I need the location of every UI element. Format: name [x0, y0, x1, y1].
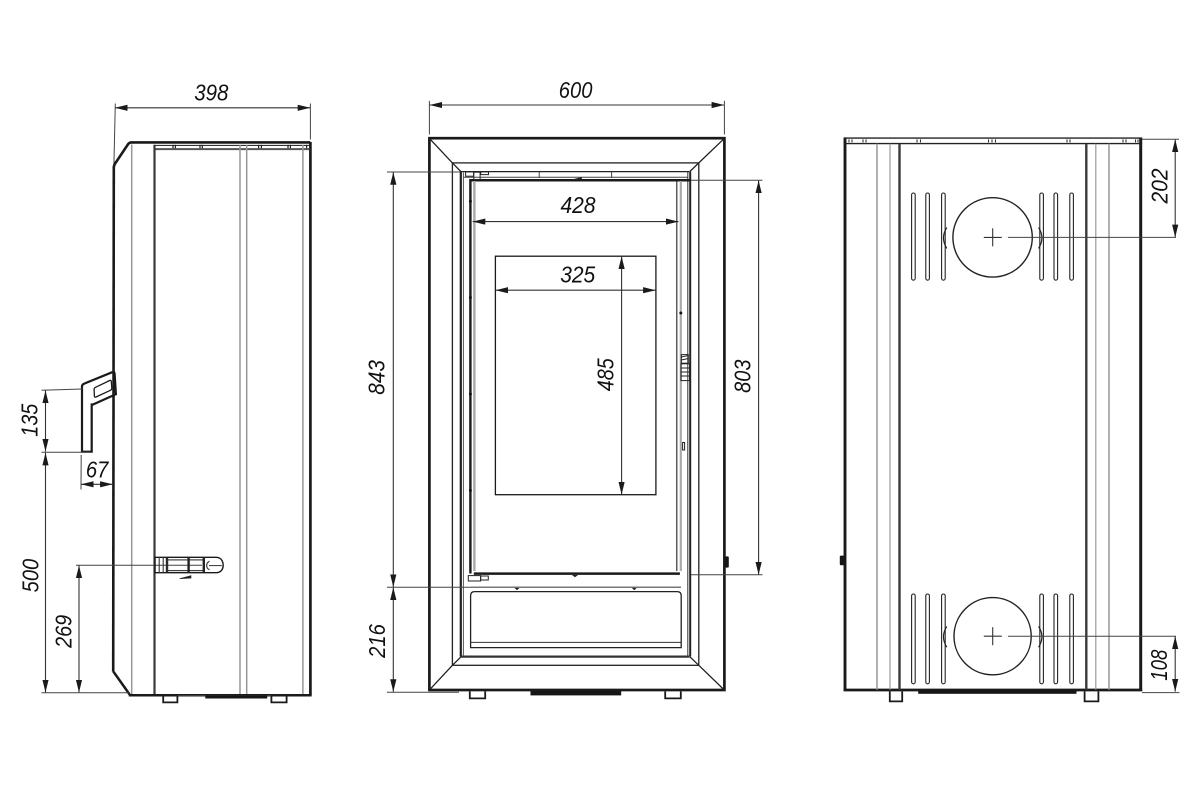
svg-text:67: 67	[86, 457, 109, 483]
svg-text:398: 398	[194, 79, 228, 105]
svg-text:325: 325	[560, 261, 596, 287]
svg-text:600: 600	[559, 77, 593, 103]
svg-text:135: 135	[16, 403, 42, 437]
svg-text:500: 500	[17, 559, 43, 593]
svg-text:485: 485	[593, 358, 619, 392]
svg-text:216: 216	[364, 623, 390, 658]
svg-text:428: 428	[561, 192, 596, 218]
svg-text:803: 803	[729, 360, 755, 393]
svg-text:108: 108	[1146, 650, 1172, 681]
svg-text:269: 269	[50, 615, 76, 649]
svg-text:843: 843	[364, 360, 390, 395]
svg-text:202: 202	[1146, 169, 1172, 205]
